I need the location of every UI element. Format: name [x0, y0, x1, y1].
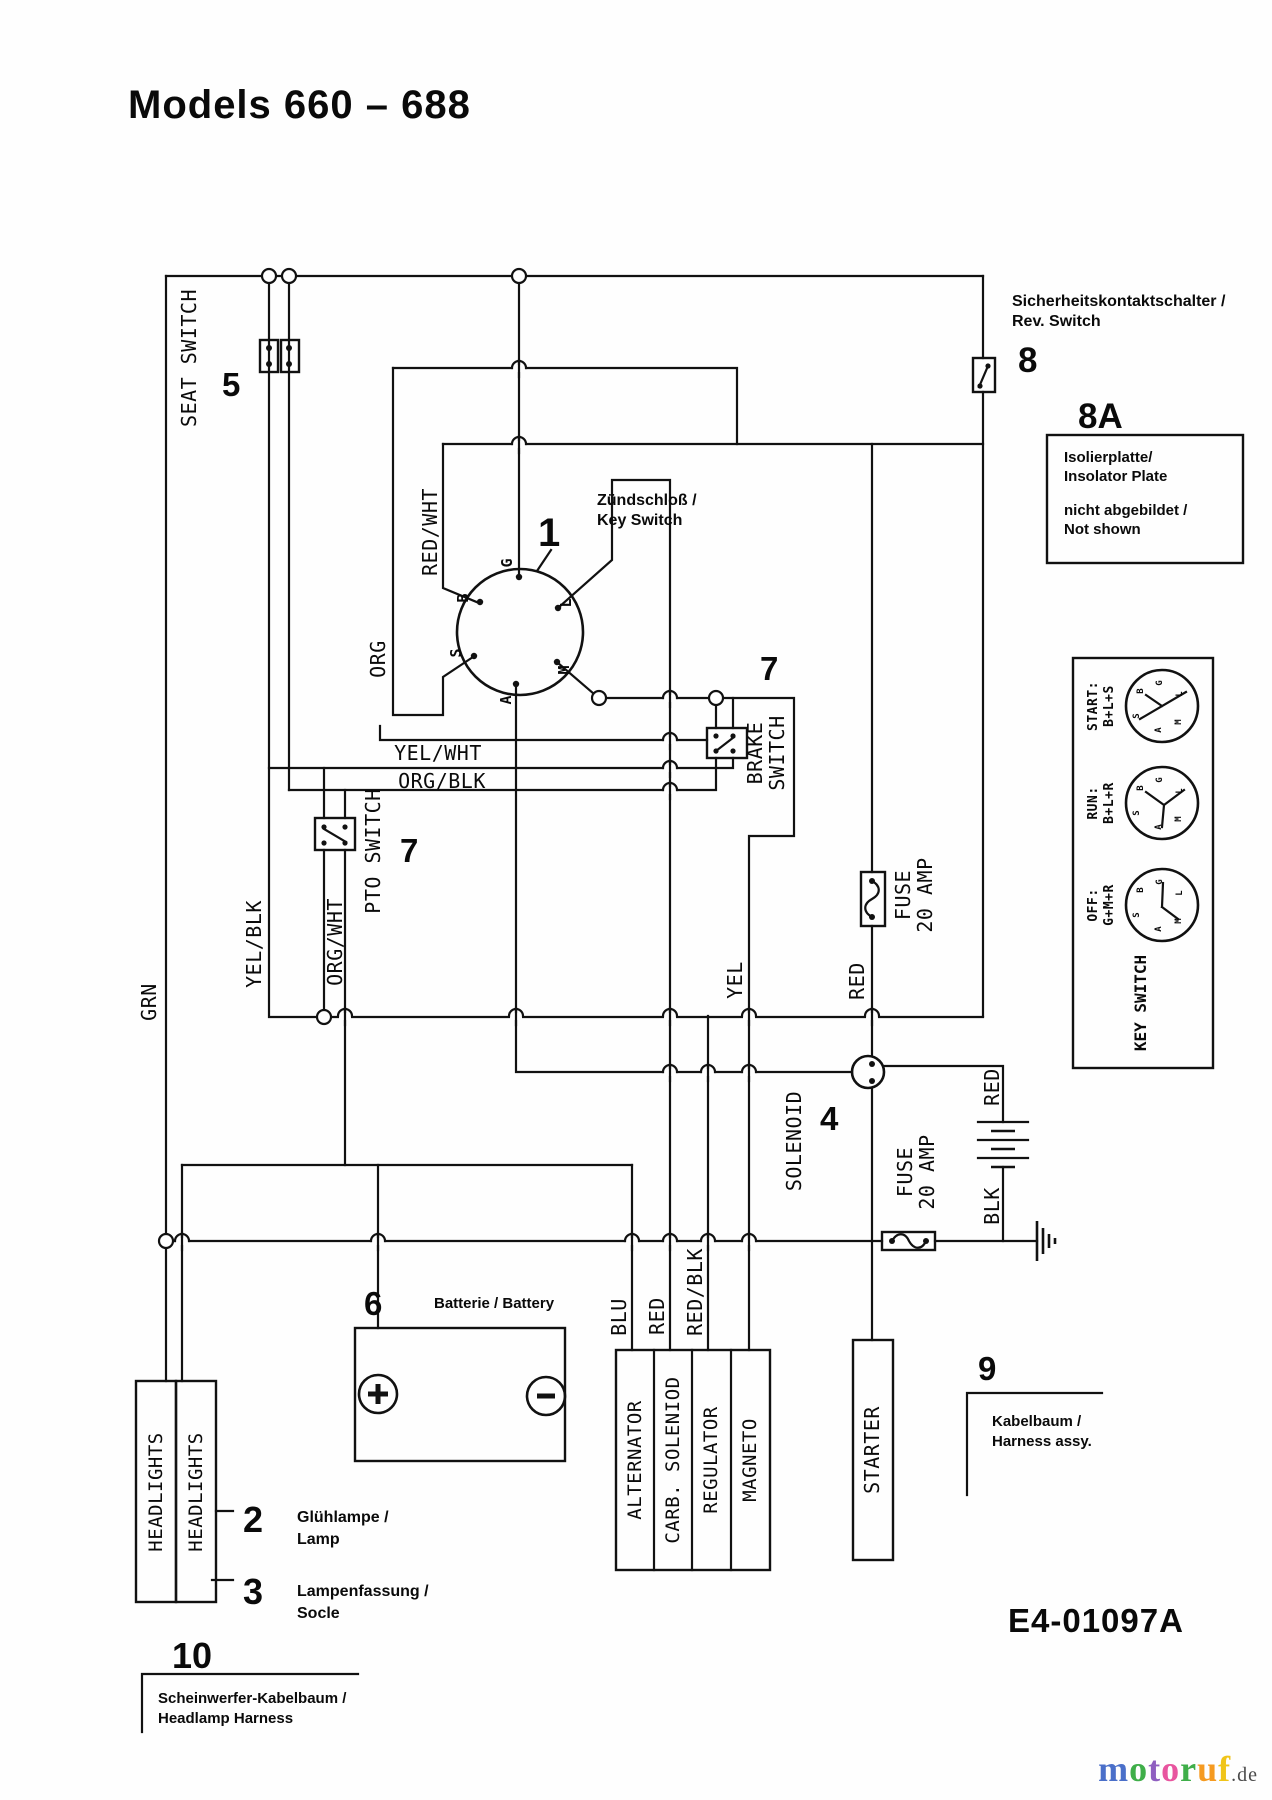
lamp-ann-de: Glühlampe / — [297, 1509, 389, 1526]
callout-3: 3 — [243, 1571, 263, 1612]
rev-switch-symbol — [973, 358, 995, 392]
callout-7-brake: 7 — [760, 650, 778, 687]
ground-symbol — [1037, 1221, 1055, 1261]
wire-hops — [175, 360, 879, 1250]
not-shown-en: Not shown — [1064, 521, 1141, 538]
fuse1-label-2: 20 AMP — [913, 857, 937, 932]
key-position-off: G B L S A M OFF: G+M+R — [1086, 869, 1198, 941]
pto-switch-label: PTO SWITCH — [361, 788, 385, 913]
terminal-s: S — [447, 648, 465, 657]
pto-switch-symbol — [315, 818, 355, 850]
svg-text:S: S — [1132, 912, 1142, 917]
org-blk-label: ORG/BLK — [398, 769, 486, 793]
yel-label: YEL — [723, 961, 747, 999]
fuse-2-symbol — [882, 1232, 935, 1250]
harness-ann-en: Harness assy. — [992, 1433, 1092, 1450]
callout-1: 1 — [538, 511, 560, 555]
svg-text:M: M — [1174, 719, 1184, 725]
callout-2: 2 — [243, 1499, 263, 1540]
harness-ann-de: Kabelbaum / — [992, 1413, 1082, 1430]
watermark-suffix: .de — [1231, 1764, 1258, 1786]
key-switch-ann-de: Zündschloß / — [597, 492, 697, 509]
svg-text:G: G — [1155, 879, 1165, 884]
solenoid-symbol — [852, 1056, 884, 1088]
insulator-plate-note: Isolierplatte/ Insolator Plate nicht abg… — [1047, 435, 1243, 563]
socket-ann-de: Lampenfassung / — [297, 1583, 429, 1600]
svg-text:G: G — [1155, 777, 1165, 782]
red-carb-label: RED — [645, 1297, 669, 1335]
solenoid-label: SOLENOID — [782, 1091, 806, 1191]
alternator-label: ALTERNATOR — [624, 1400, 646, 1519]
blk-label: BLK — [980, 1187, 1004, 1225]
watermark-letter: m — [1098, 1749, 1129, 1789]
key-switch-symbol: G B L S A M — [447, 550, 583, 705]
svg-text:B: B — [1136, 688, 1146, 694]
hl-harness-ann-de: Scheinwerfer-Kabelbaum / — [158, 1690, 347, 1707]
terminal-a: A — [497, 695, 515, 704]
callout-8: 8 — [1018, 341, 1037, 380]
svg-text:S: S — [1132, 810, 1142, 815]
rev-switch-ann-de: Sicherheitskontaktschalter / — [1012, 293, 1226, 310]
wiring-diagram: G B L S A M — [0, 0, 1272, 1800]
svg-text:G: G — [1155, 680, 1165, 685]
wires — [166, 276, 1037, 1381]
start-terms: B+L+S — [1102, 685, 1117, 727]
start-name: START: — [1086, 681, 1101, 731]
insulator-text-en: Insolator Plate — [1064, 468, 1167, 485]
not-shown-de: nicht abgebildet / — [1064, 502, 1188, 519]
svg-text:A: A — [1154, 727, 1164, 733]
blu-label: BLU — [607, 1298, 631, 1336]
svg-text:B: B — [1136, 887, 1146, 893]
red-battery-label: RED — [980, 1068, 1004, 1106]
battery — [355, 1328, 565, 1461]
svg-text:B: B — [1136, 785, 1146, 791]
callout-5: 5 — [222, 366, 240, 403]
run-terms: B+L+R — [1102, 782, 1117, 824]
carb-solenoid-label: CARB. SOLENIOD — [662, 1376, 684, 1543]
run-name: RUN: — [1086, 786, 1101, 819]
headlights: HEADLIGHTS HEADLIGHTS — [136, 1381, 233, 1602]
callout-6: 6 — [364, 1285, 382, 1322]
battery-heading: Batterie / Battery — [434, 1295, 555, 1312]
brake-switch-symbol — [707, 728, 747, 758]
watermark-letter: u — [1197, 1749, 1218, 1789]
key-position-start: G B L S A M START: B+L+S — [1086, 670, 1198, 742]
seat-switch-label: SEAT SWITCH — [177, 289, 201, 427]
callout-7-pto: 7 — [400, 832, 418, 869]
svg-text:L: L — [1175, 788, 1185, 794]
rev-switch-ann-en: Rev. Switch — [1012, 313, 1101, 330]
fu2-label-2: 20 AMP — [915, 1134, 939, 1209]
hl-harness-ann-en: Headlamp Harness — [158, 1710, 293, 1727]
svg-text:A: A — [1154, 926, 1164, 932]
magneto-label: MAGNETO — [739, 1418, 761, 1502]
starter-label: STARTER — [860, 1406, 884, 1494]
org-label: ORG — [366, 640, 390, 678]
red-wht-label: RED/WHT — [418, 488, 442, 576]
grn-label: GRN — [137, 983, 161, 1021]
off-name: OFF: — [1086, 888, 1101, 921]
svg-text:M: M — [1174, 918, 1184, 924]
terminal-g: G — [498, 558, 516, 567]
seat-switch-connector — [260, 340, 299, 372]
battery-cell-symbol — [978, 1122, 1028, 1167]
red-blk-label: RED/BLK — [683, 1248, 707, 1336]
callout-4: 4 — [820, 1100, 839, 1137]
terminal-b: B — [454, 593, 472, 602]
headlights-label-1: HEADLIGHTS — [145, 1432, 167, 1551]
off-terms: G+M+R — [1102, 884, 1117, 926]
drawing-code: E4-01097A — [1008, 1602, 1184, 1639]
svg-text:L: L — [1175, 890, 1185, 896]
insulator-text-de: Isolierplatte/ — [1064, 449, 1153, 466]
fuse1-label-1: FUSE — [891, 870, 915, 920]
watermark-letter: o — [1129, 1749, 1148, 1789]
watermark-letter: t — [1148, 1749, 1161, 1789]
key-position-run: G B L S A M RUN: B+L+R — [1086, 767, 1198, 839]
key-switch-ann-en: Key Switch — [597, 512, 682, 529]
watermark-letter: r — [1180, 1749, 1197, 1789]
fuse2-label-1: FUSE — [893, 1147, 917, 1197]
terminal-m: M — [555, 665, 573, 674]
svg-text:S: S — [1132, 713, 1142, 718]
callout-8a: 8A — [1078, 397, 1123, 436]
wiring-diagram-page: G B L S A M — [0, 0, 1272, 1800]
svg-text:M: M — [1174, 816, 1184, 822]
fuse-1-symbol — [861, 872, 885, 926]
page-title: Models 660 – 688 — [128, 83, 471, 127]
starter: STARTER — [853, 1340, 893, 1560]
socket-ann-en: Socle — [297, 1605, 340, 1622]
org-wht-label: ORG/WHT — [323, 898, 347, 986]
yel-wht-label: YEL/WHT — [394, 741, 482, 765]
regulator-label: REGULATOR — [700, 1406, 722, 1514]
watermark-letter: o — [1161, 1749, 1180, 1789]
red-fuse-label: RED — [845, 962, 869, 1000]
lamp-ann-en: Lamp — [297, 1531, 340, 1548]
headlights-label-2: HEADLIGHTS — [185, 1432, 207, 1551]
motoruf-watermark: motoruf.de — [1098, 1748, 1258, 1790]
terminal-l: L — [557, 598, 575, 607]
callout-10: 10 — [172, 1635, 212, 1676]
brake-switch-label-1: BRAKE — [743, 722, 767, 785]
key-switch-box-label: KEY SWITCH — [1131, 955, 1150, 1051]
yel-blk-label: YEL/BLK — [242, 900, 266, 988]
callout-9: 9 — [978, 1350, 996, 1387]
engine-components: ALTERNATOR CARB. SOLENIOD REGULATOR MAGN… — [616, 1350, 770, 1570]
brake-switch-label-2: SWITCH — [765, 715, 789, 790]
key-positions-table: G B L S A M START: B+L+S G B L S A M RUN… — [1073, 658, 1213, 1068]
watermark-letter: f — [1218, 1749, 1231, 1789]
svg-text:A: A — [1154, 824, 1164, 830]
svg-text:L: L — [1175, 691, 1185, 697]
